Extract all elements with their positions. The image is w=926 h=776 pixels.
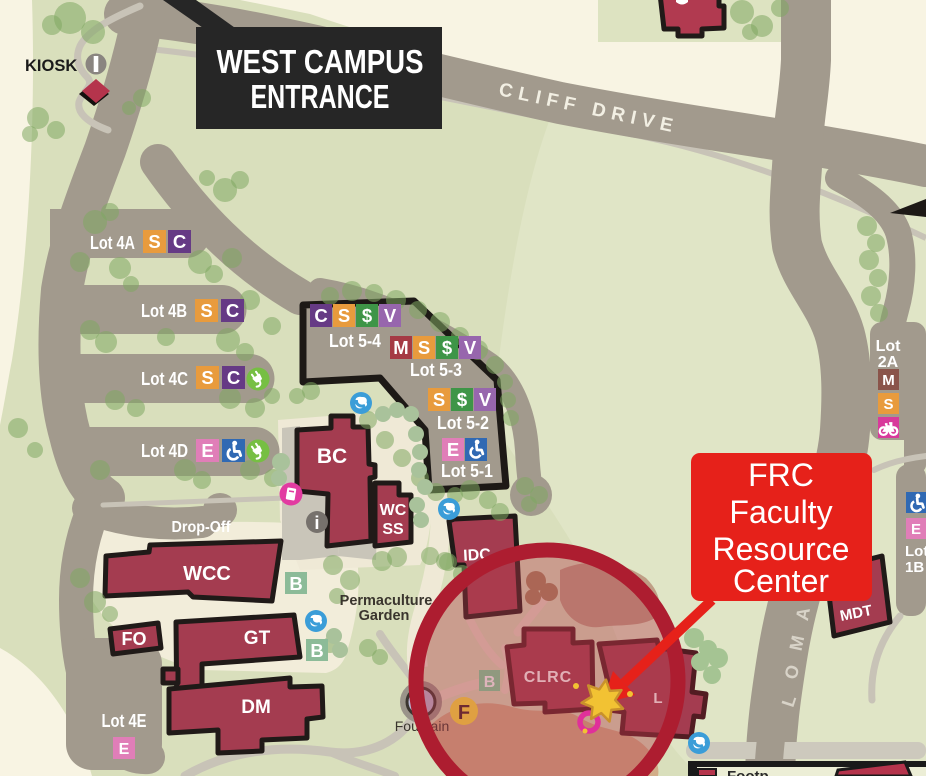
svg-text:Lot 4D: Lot 4D	[141, 441, 188, 461]
svg-text:WEST CAMPUS: WEST CAMPUS	[217, 43, 424, 80]
svg-text:WCC: WCC	[183, 563, 231, 585]
svg-text:1B: 1B	[905, 559, 924, 576]
svg-text:Lot: Lot	[876, 338, 902, 355]
svg-text:i: i	[314, 512, 319, 533]
svg-text:E: E	[447, 439, 459, 460]
svg-text:E: E	[911, 521, 921, 538]
svg-text:C: C	[226, 300, 239, 321]
svg-text:V: V	[479, 389, 492, 410]
svg-text:Footp: Footp	[727, 768, 769, 776]
svg-text:Lot: Lot	[905, 543, 926, 560]
svg-text:B: B	[484, 674, 496, 691]
svg-text:S: S	[200, 300, 212, 321]
svg-text:S: S	[201, 367, 213, 388]
svg-text:V: V	[384, 305, 397, 326]
svg-text:V: V	[464, 337, 477, 358]
svg-text:B: B	[310, 640, 323, 661]
svg-text:F: F	[458, 702, 470, 724]
svg-text:S: S	[338, 305, 350, 326]
svg-text:S: S	[433, 389, 445, 410]
svg-text:Lot 5-2: Lot 5-2	[437, 413, 489, 433]
svg-text:GT: GT	[244, 628, 271, 649]
svg-text:Lot 5-4: Lot 5-4	[329, 331, 381, 351]
svg-text:S: S	[148, 231, 160, 252]
svg-text:Permaculture: Permaculture	[340, 593, 433, 609]
svg-text:Center: Center	[733, 563, 829, 599]
svg-text:DM: DM	[241, 697, 271, 718]
svg-text:E: E	[201, 440, 213, 461]
svg-text:C: C	[173, 231, 186, 252]
svg-text:M: M	[882, 372, 895, 389]
svg-text:S: S	[883, 396, 893, 413]
svg-text:B: B	[289, 573, 302, 594]
svg-text:Lot 4C: Lot 4C	[141, 369, 188, 389]
svg-text:KIOSK: KIOSK	[25, 57, 77, 75]
svg-text:M: M	[393, 337, 408, 358]
svg-text:Resource: Resource	[713, 531, 850, 567]
svg-text:C: C	[227, 367, 240, 388]
svg-text:$: $	[442, 337, 453, 358]
svg-text:C: C	[314, 305, 327, 326]
svg-text:Lot 4B: Lot 4B	[141, 301, 187, 321]
svg-text:Garden: Garden	[359, 608, 410, 624]
svg-text:FO: FO	[122, 629, 147, 649]
svg-text:WC: WC	[380, 502, 407, 519]
svg-text:S: S	[418, 337, 430, 358]
svg-text:ENTRANCE: ENTRANCE	[251, 78, 390, 115]
svg-text:Lot 5-1: Lot 5-1	[441, 461, 493, 481]
svg-text:Drop-Off: Drop-Off	[172, 519, 232, 536]
svg-text:E: E	[119, 741, 130, 758]
svg-text:$: $	[457, 389, 468, 410]
svg-text:$: $	[362, 305, 373, 326]
svg-text:FRC: FRC	[748, 457, 814, 493]
svg-text:Lot 4E: Lot 4E	[102, 711, 147, 731]
svg-text:Lot 5-3: Lot 5-3	[410, 360, 462, 380]
svg-text:SS: SS	[382, 521, 404, 538]
svg-text:2A: 2A	[878, 354, 899, 371]
svg-text:Faculty: Faculty	[729, 494, 832, 530]
svg-text:BC: BC	[317, 445, 347, 468]
svg-text:Lot 4A: Lot 4A	[90, 233, 135, 253]
